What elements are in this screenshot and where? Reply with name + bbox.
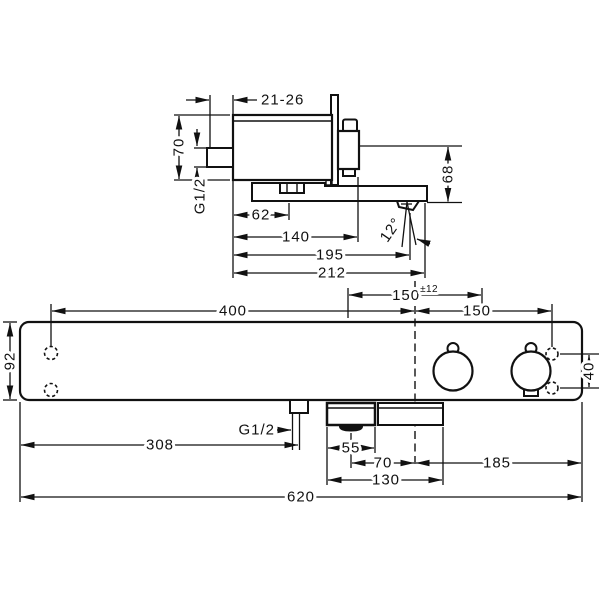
dim-housing-width: 130 xyxy=(372,472,400,489)
dim-spout-to-center: 70 xyxy=(374,455,393,472)
drawing-canvas xyxy=(0,0,600,600)
dim-center-to-right-hole: 150 xyxy=(463,303,491,320)
dim-right-hole-spacing: 40 xyxy=(581,362,598,381)
dim-left-hole-to-center: 400 xyxy=(219,303,247,320)
dim-spout-depth: 195 xyxy=(316,247,344,264)
dim-handle-depth: 140 xyxy=(282,229,310,246)
mixer-body-side xyxy=(233,115,332,180)
dim-total-depth: 212 xyxy=(318,265,346,282)
housing-right-section xyxy=(378,403,443,425)
dim-spout-housing-front: 55 xyxy=(342,440,361,457)
dim-outlet-height: 68 xyxy=(440,165,457,184)
dim-body-height-front: 92 xyxy=(2,352,19,371)
dim-body-height-side: 70 xyxy=(171,138,188,157)
mixer-technical-drawing: 21-26 70 G1/2 62 140 195 212 68 12° xyxy=(0,0,600,600)
shelf-connector-nut xyxy=(280,183,304,193)
supply-stub-side xyxy=(207,148,233,167)
label-inlet-thread-side: G1/2 xyxy=(192,178,209,215)
thermostat-knob xyxy=(512,352,551,391)
supply-stub-front xyxy=(290,400,308,413)
mixer-body-front xyxy=(20,322,582,400)
shelf-profile xyxy=(252,183,427,201)
dim-inlet-position: 308 xyxy=(146,437,174,454)
technical-drawing-page: 21-26 70 G1/2 62 140 195 212 68 12° xyxy=(0,0,600,600)
dim-wall-distance: 21-26 xyxy=(261,92,304,109)
spout-housing xyxy=(327,403,375,425)
handle-top-tab xyxy=(343,120,357,132)
handle-side xyxy=(338,131,359,169)
dim-inlet-offset: 62 xyxy=(252,207,271,224)
dim-center-to-right-edge: 185 xyxy=(483,455,511,472)
label-outlet-thread-front: G1/2 xyxy=(238,422,275,439)
dim-total-width: 620 xyxy=(287,489,315,506)
diverter-knob xyxy=(434,352,473,391)
